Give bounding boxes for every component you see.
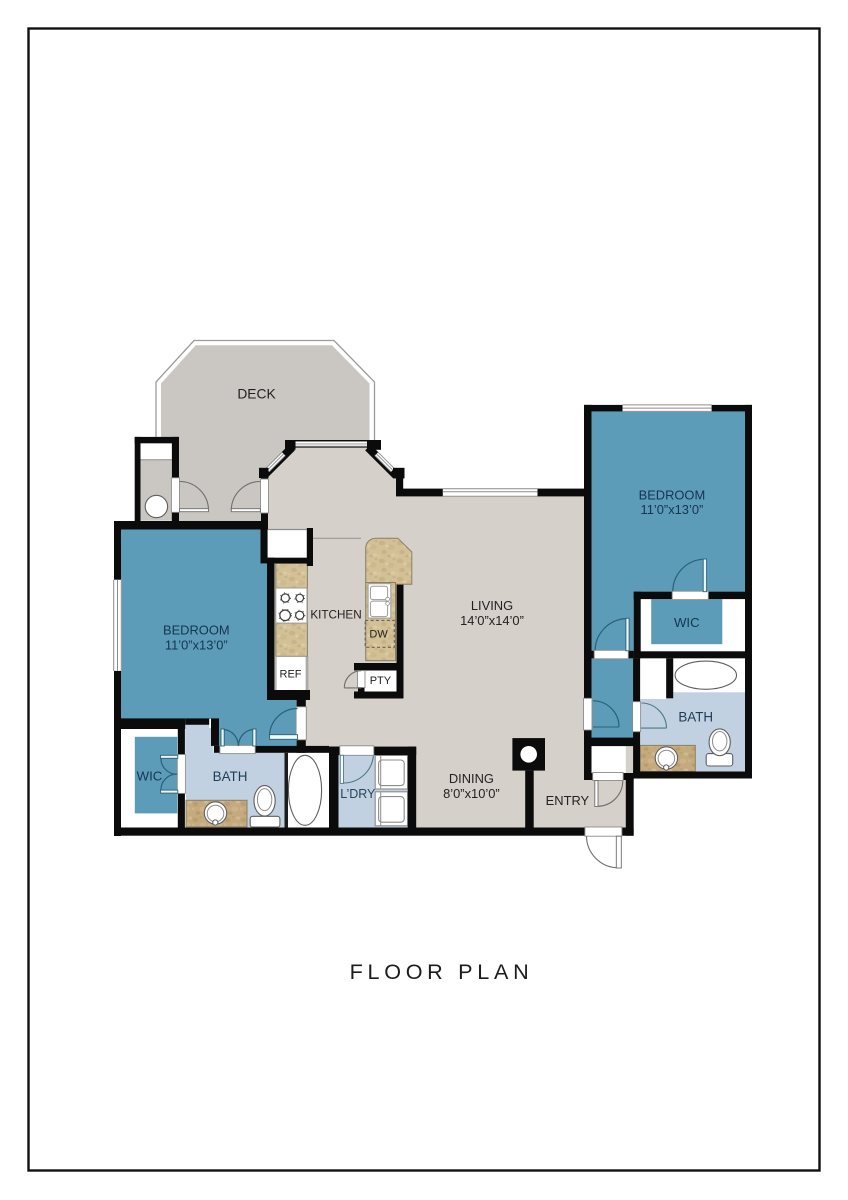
svg-text:WIC: WIC — [674, 615, 700, 630]
svg-text:BEDROOM: BEDROOM — [639, 488, 706, 503]
svg-text:L’DRY: L’DRY — [340, 787, 376, 801]
svg-text:8’0”x10’0”: 8’0”x10’0” — [443, 786, 500, 801]
svg-text:BEDROOM: BEDROOM — [163, 623, 230, 638]
svg-text:ENTRY: ENTRY — [546, 793, 590, 808]
svg-text:DINING: DINING — [449, 771, 494, 786]
svg-text:REF: REF — [280, 669, 302, 681]
svg-text:11’0”x13’0”: 11’0”x13’0” — [165, 638, 228, 653]
svg-text:WIC: WIC — [137, 768, 163, 783]
svg-text:PTY: PTY — [370, 675, 392, 687]
svg-text:FLOOR PLAN: FLOOR PLAN — [350, 959, 534, 984]
svg-text:KITCHEN: KITCHEN — [310, 609, 361, 622]
svg-text:BATH: BATH — [213, 769, 248, 784]
svg-text:DW: DW — [369, 629, 388, 641]
svg-text:DECK: DECK — [237, 386, 276, 401]
svg-text:LIVING: LIVING — [471, 598, 513, 613]
svg-text:14’0”x14’0”: 14’0”x14’0” — [460, 613, 524, 628]
svg-text:BATH: BATH — [678, 709, 713, 724]
svg-text:11’0”x13’0”: 11’0”x13’0” — [640, 502, 703, 517]
